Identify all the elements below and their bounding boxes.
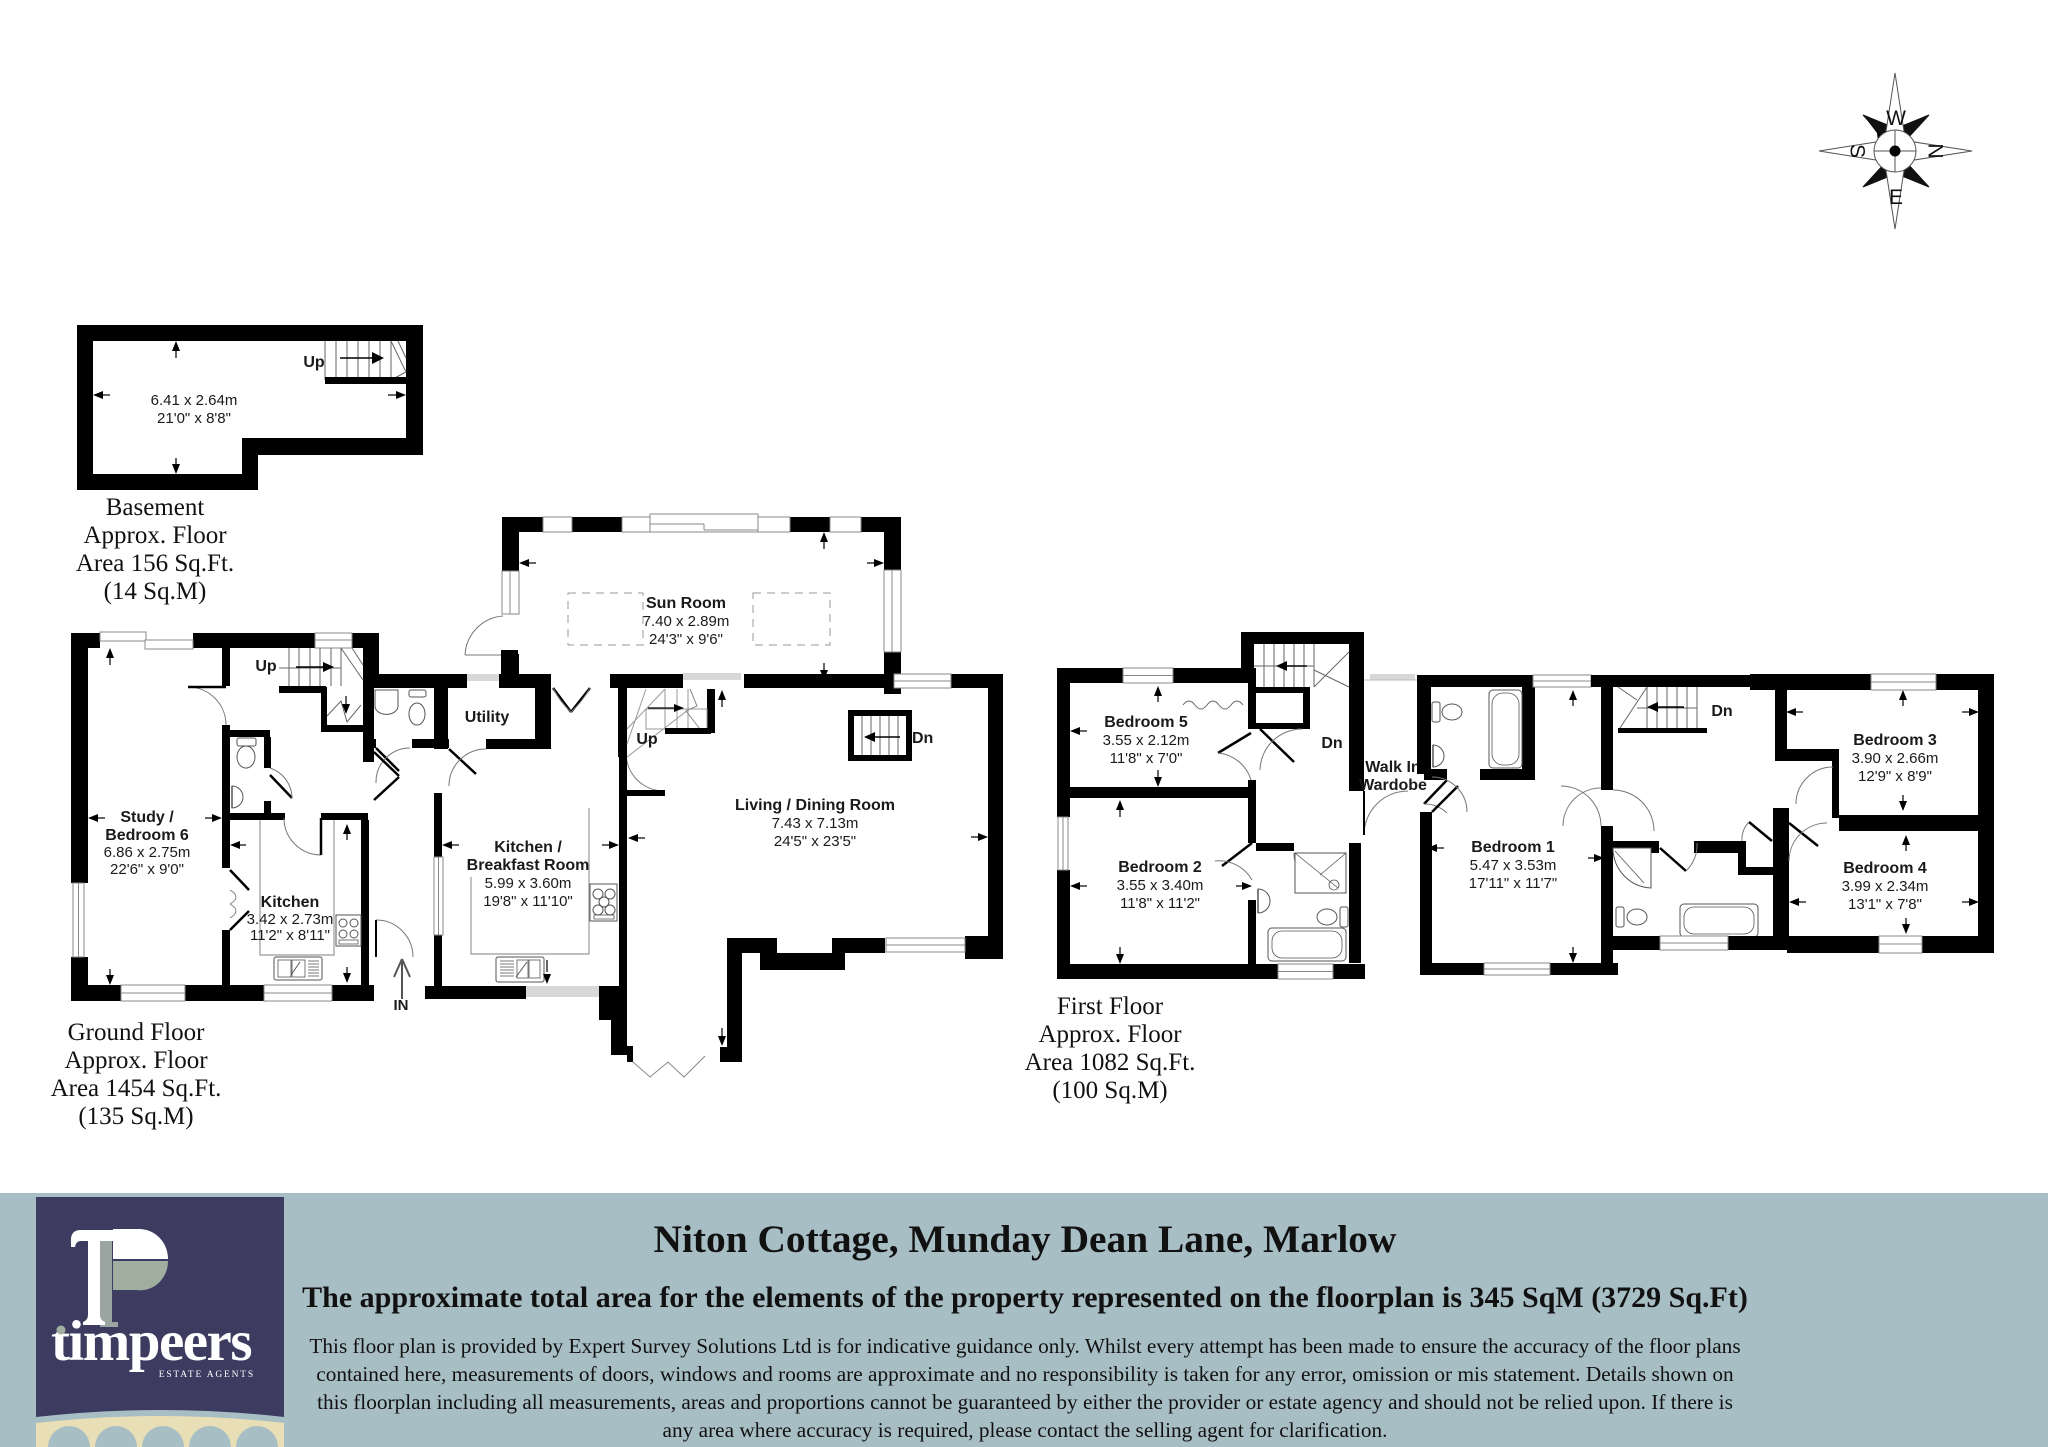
svg-text:Utility: Utility	[465, 709, 510, 726]
svg-text:Up: Up	[303, 354, 325, 371]
svg-text:12'9" x 8'9": 12'9" x 8'9"	[1858, 768, 1932, 785]
svg-text:Bedroom 1: Bedroom 1	[1471, 839, 1555, 856]
svg-text:Bedroom 5: Bedroom 5	[1104, 714, 1188, 731]
svg-text:5.47 x 3.53m: 5.47 x 3.53m	[1470, 857, 1557, 874]
svg-text:3.55 x 3.40m: 3.55 x 3.40m	[1117, 877, 1204, 894]
svg-text:11'8" x 11'2": 11'8" x 11'2"	[1120, 895, 1200, 912]
svg-text:Area 1454 Sq.Ft.: Area 1454 Sq.Ft.	[51, 1075, 222, 1102]
svg-text:Bedroom 6: Bedroom 6	[105, 827, 189, 844]
svg-text:The approximate total area for: The approximate total area for the eleme…	[302, 1281, 1748, 1314]
svg-text:Dn: Dn	[1711, 703, 1732, 720]
svg-text:Kitchen /: Kitchen /	[494, 839, 562, 856]
svg-text:Sun Room: Sun Room	[646, 595, 726, 612]
svg-text:this floorplan including all m: this floorplan including all measurement…	[317, 1390, 1733, 1414]
svg-text:11'2" x 8'11": 11'2" x 8'11"	[250, 927, 330, 944]
svg-text:S: S	[1845, 144, 1868, 158]
svg-text:3.55 x 2.12m: 3.55 x 2.12m	[1103, 732, 1190, 749]
svg-text:Walk In: Walk In	[1365, 759, 1420, 776]
svg-text:Basement: Basement	[106, 494, 205, 521]
svg-text:Approx. Floor: Approx. Floor	[83, 522, 227, 549]
svg-text:5.99 x 3.60m: 5.99 x 3.60m	[485, 875, 572, 892]
svg-text:Study /: Study /	[120, 809, 174, 826]
svg-text:W: W	[1886, 107, 1906, 130]
svg-text:6.86 x 2.75m: 6.86 x 2.75m	[104, 844, 191, 861]
svg-text:any area where accuracy is req: any area where accuracy is required, ple…	[663, 1418, 1388, 1442]
svg-text:IN: IN	[394, 997, 409, 1014]
svg-text:17'11" x 11'7": 17'11" x 11'7"	[1469, 875, 1557, 892]
svg-text:7.40 x 2.89m: 7.40 x 2.89m	[643, 613, 730, 630]
svg-text:Up: Up	[255, 658, 277, 675]
svg-text:Dn: Dn	[912, 730, 933, 747]
svg-text:(100 Sq.M): (100 Sq.M)	[1052, 1077, 1167, 1104]
svg-text:Living / Dining Room: Living / Dining Room	[735, 797, 895, 814]
svg-text:Breakfast Room: Breakfast Room	[467, 857, 590, 874]
svg-text:3.99 x 2.34m: 3.99 x 2.34m	[1842, 878, 1929, 895]
svg-text:(135 Sq.M): (135 Sq.M)	[78, 1103, 193, 1130]
svg-text:Area 1082 Sq.Ft.: Area 1082 Sq.Ft.	[1025, 1049, 1196, 1076]
svg-text:First Floor: First Floor	[1057, 993, 1164, 1020]
svg-text:timpeers: timpeers	[51, 1310, 251, 1373]
svg-text:This floor plan is provided by: This floor plan is provided by Expert Su…	[309, 1334, 1740, 1358]
svg-text:Up: Up	[636, 731, 658, 748]
svg-text:21'0" x 8'8": 21'0" x 8'8"	[157, 410, 231, 427]
svg-text:Bedroom 4: Bedroom 4	[1843, 860, 1927, 877]
svg-text:24'5" x 23'5": 24'5" x 23'5"	[774, 833, 856, 850]
svg-text:19'8" x 11'10": 19'8" x 11'10"	[483, 893, 573, 910]
svg-text:Bedroom 3: Bedroom 3	[1853, 732, 1937, 749]
svg-text:Kitchen: Kitchen	[261, 894, 320, 911]
svg-text:3.90 x 2.66m: 3.90 x 2.66m	[1852, 750, 1939, 767]
svg-text:Approx. Floor: Approx. Floor	[64, 1047, 208, 1074]
svg-text:Niton Cottage, Munday Dean Lan: Niton Cottage, Munday Dean Lane, Marlow	[654, 1217, 1397, 1261]
svg-text:Bedroom 2: Bedroom 2	[1118, 859, 1202, 876]
svg-text:Ground Floor: Ground Floor	[68, 1019, 205, 1046]
svg-text:11'8" x 7'0": 11'8" x 7'0"	[1110, 750, 1183, 767]
svg-text:13'1" x 7'8": 13'1" x 7'8"	[1848, 896, 1922, 913]
svg-text:22'6" x 9'0": 22'6" x 9'0"	[110, 861, 184, 878]
svg-text:ESTATE AGENTS: ESTATE AGENTS	[159, 1370, 255, 1380]
svg-text:3.42 x 2.73m: 3.42 x 2.73m	[247, 911, 334, 928]
svg-text:Approx. Floor: Approx. Floor	[1038, 1021, 1182, 1048]
svg-text:7.43 x 7.13m: 7.43 x 7.13m	[772, 815, 859, 832]
svg-text:contained here, measurements o: contained here, measurements of doors, w…	[316, 1362, 1734, 1386]
svg-text:N: N	[1923, 143, 1946, 158]
svg-text:(14 Sq.M): (14 Sq.M)	[104, 578, 207, 605]
svg-text:24'3" x 9'6": 24'3" x 9'6"	[649, 631, 723, 648]
svg-text:Dn: Dn	[1321, 735, 1342, 752]
svg-text:Wardobe: Wardobe	[1359, 777, 1427, 794]
svg-text:6.41 x 2.64m: 6.41 x 2.64m	[151, 392, 238, 409]
svg-text:Area 156 Sq.Ft.: Area 156 Sq.Ft.	[76, 550, 234, 577]
svg-text:E: E	[1889, 186, 1903, 209]
